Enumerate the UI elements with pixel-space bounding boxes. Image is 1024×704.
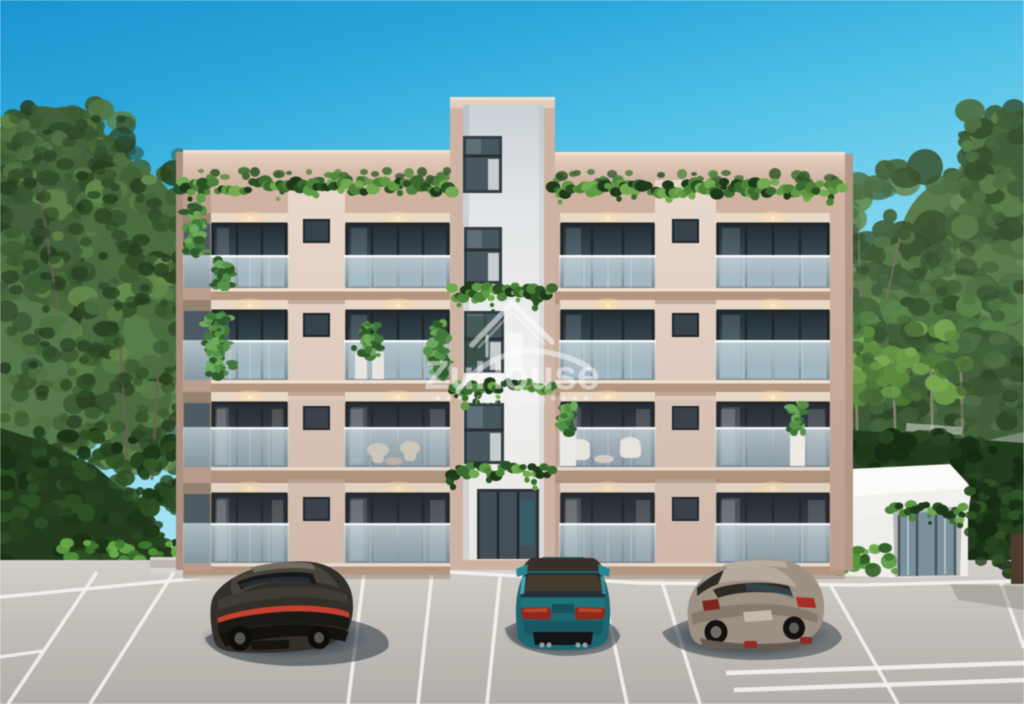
svg-text:ZuHouse: ZuHouse — [424, 352, 599, 398]
svg-text:Real-Estate: Real-Estate — [475, 393, 547, 407]
